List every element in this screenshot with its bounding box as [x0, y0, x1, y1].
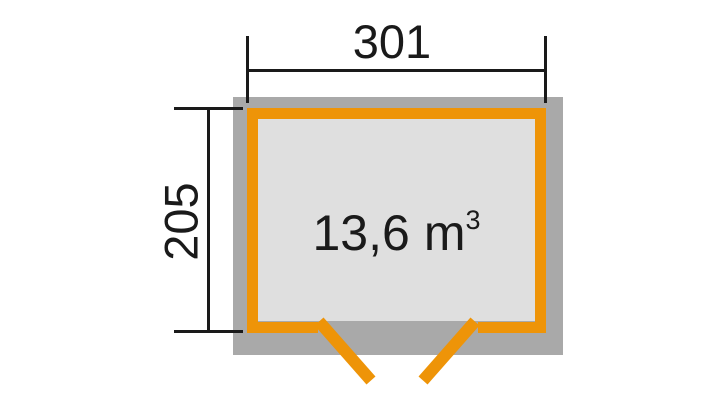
height-dimension-label: 205	[158, 122, 205, 322]
inner-outline-top	[247, 108, 546, 119]
height-dimension-tick-top	[174, 107, 243, 110]
floor-plan-diagram: 301 205 13,6m3	[0, 0, 720, 405]
height-dimension-tick-bottom	[174, 330, 243, 333]
volume-unit: m	[424, 205, 466, 261]
inner-outline-bottom-right	[478, 322, 546, 333]
width-dimension-tick-right	[544, 36, 547, 103]
volume-label: 13,6m3	[258, 195, 535, 255]
width-dimension-tick-left	[246, 36, 249, 103]
inner-outline-right	[535, 108, 546, 333]
volume-exponent: 3	[465, 205, 480, 235]
volume-value: 13,6	[312, 205, 409, 261]
inner-outline-bottom-left	[247, 322, 318, 333]
width-dimension-label: 301	[292, 18, 492, 65]
inner-outline-left	[247, 108, 258, 333]
width-dimension-line	[247, 69, 545, 72]
